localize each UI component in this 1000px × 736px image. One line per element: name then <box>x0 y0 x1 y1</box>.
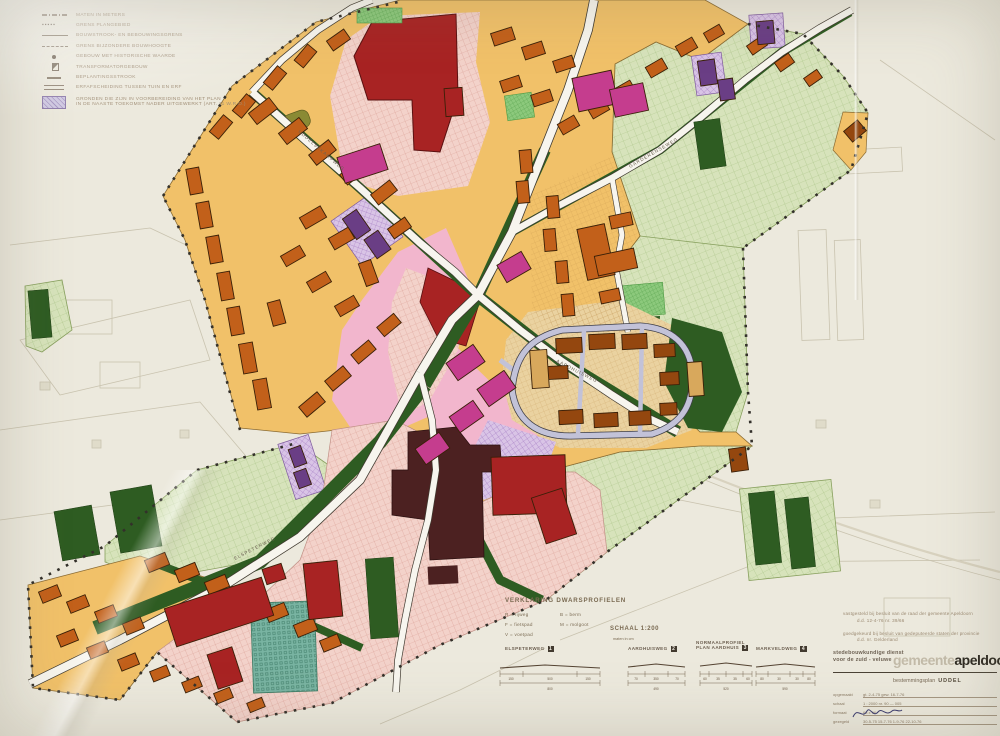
green-strip <box>365 557 399 639</box>
municipality-logo: gemeenteapeldoorn <box>893 652 1000 670</box>
profile-dimension-value: 350 <box>653 677 659 681</box>
map-shape <box>816 420 826 428</box>
municipality-name: apeldoorn <box>954 652 1000 668</box>
profile-dimension-value: 80 <box>760 677 764 681</box>
green-strip <box>28 289 52 339</box>
legend-item: BOUWSTROOK- EN BEBOUWINGSGRENS <box>42 31 312 41</box>
building <box>654 343 676 357</box>
legend-item: TRANSFORMATORGEBOUW <box>42 62 312 72</box>
profile-dimension-value: 70 <box>634 677 638 681</box>
building <box>629 410 652 425</box>
trafo-symbol-icon <box>52 63 59 71</box>
map-legend: MATEN IN METERS▪▪▪▪▪GRENS PLANGEBIEDBOUW… <box>42 10 312 111</box>
profile-dimension-value: 150 <box>585 677 591 681</box>
profile-abbreviation: M = molgoot <box>560 622 589 627</box>
map-shape <box>504 92 534 121</box>
building <box>530 349 550 388</box>
profile-abbreviation: F = fietspad <box>505 622 533 627</box>
profile-dimension-value: 30 <box>777 677 781 681</box>
map-shape <box>92 440 101 448</box>
legend-item-label: BEPLANTINGSSTROOK <box>76 75 136 80</box>
legend-item: ERFAFSCHEIDING TUSSEN TUIN EN ERF <box>42 83 312 93</box>
municipality-word: gemeente <box>893 652 954 668</box>
plan-title: bestemmingsplan UDDEL <box>893 678 962 684</box>
building <box>594 412 619 427</box>
legend-item: MATEN IN METERS <box>42 10 312 20</box>
approval-line-1b: d.d. 12-4-76 nr. 39/66 <box>857 618 995 625</box>
legend-item-label: GRENS BIJZONDERE BOUWHOOGTE <box>76 44 171 49</box>
legend-item: GRENS BIJZONDERE BOUWHOOGTE <box>42 41 312 51</box>
legend-item-label: GRONDEN DIE ZIJN IN VOORBEREIDING VAN HE… <box>76 97 246 107</box>
swatch-symbol-icon <box>42 96 66 109</box>
legend-item-label: TRANSFORMATORGEBOUW <box>76 65 148 70</box>
building <box>559 409 584 424</box>
building <box>546 196 560 219</box>
building <box>516 181 530 204</box>
legend-item-label: GRENS PLANGEBIED <box>76 23 131 28</box>
profiles-scale: SCHAAL 1:200 <box>610 626 659 632</box>
legend-item: GEBOUW MET HISTORISCHE WAARDE <box>42 52 312 62</box>
building <box>519 150 533 174</box>
profiles-scale-note: maten in cm <box>613 637 634 641</box>
building <box>589 333 616 349</box>
scanned-zoning-map: { "legend": { "items": [ {"sym":"dashdot… <box>0 0 1000 736</box>
building <box>543 229 557 252</box>
title-block-row-label: opgemaakt <box>833 692 863 697</box>
thick-symbol-icon <box>47 77 61 79</box>
title-block-rule <box>833 672 997 673</box>
profile-dimension-value: 35 <box>716 677 720 681</box>
building <box>561 294 575 317</box>
profile-section-label: MARKVELDWEG4 <box>756 646 807 652</box>
approval-line-2: goedgekeurd bij besluit van gedeputeerde… <box>843 631 995 638</box>
legend-item: GRONDEN DIE ZIJN IN VOORBEREIDING VAN HE… <box>42 93 312 111</box>
building <box>556 337 583 353</box>
profile-section-label: NORMAALPROFIEL PLAN AARDHUIS3 <box>696 640 748 651</box>
approval-line-1: vastgesteld bij besluit van de raad der … <box>843 611 995 618</box>
profile-dimension-value: 60 <box>746 677 750 681</box>
double-symbol-icon <box>44 85 64 90</box>
building <box>303 560 343 619</box>
building <box>622 333 648 349</box>
profile-dimension-value: 520 <box>723 687 729 691</box>
legend-item-label: ERFAFSCHEIDING TUSSEN TUIN EN ERF <box>76 85 182 90</box>
profile-dimension-value: 80 <box>807 677 811 681</box>
building <box>444 87 464 116</box>
map-shape <box>870 500 880 508</box>
profiles-title: VERKLARING DWARSPROFIELEN <box>505 597 835 604</box>
dashdot-symbol-icon <box>42 14 68 16</box>
map-shape <box>40 382 50 390</box>
title-block-row: opgemaaktgt. 2-4-75 gew. 16-7-76 <box>833 690 997 699</box>
legend-item: ▪▪▪▪▪GRENS PLANGEBIED <box>42 20 312 30</box>
profile-dimension-value: 35 <box>733 677 737 681</box>
approval-line-2b: d.d. nr. Gelderland <box>857 637 995 644</box>
profile-abbreviation: V = voetpad <box>505 632 533 637</box>
solid-symbol-icon <box>42 35 68 36</box>
profile-dimension-value: 30 <box>795 677 799 681</box>
profile-section-label: AARDHUISWEG2 <box>628 646 677 652</box>
profile-abbreviation: B = berm <box>560 612 581 617</box>
building <box>718 78 736 101</box>
building <box>555 261 569 284</box>
profile-section-number: 1 <box>548 646 554 652</box>
profile-section-number: 4 <box>800 646 806 652</box>
dot-symbol-icon <box>52 55 56 59</box>
signature <box>851 704 903 722</box>
building <box>660 372 680 386</box>
building <box>756 20 775 44</box>
profile-dimension-value: 590 <box>782 687 788 691</box>
profile-dimension-value: 800 <box>547 687 553 691</box>
legend-item-label: GEBOUW MET HISTORISCHE WAARDE <box>76 54 176 59</box>
profile-section-number: 2 <box>671 646 677 652</box>
profile-dimension-value: 490 <box>653 687 659 691</box>
profile-dimension-value: 70 <box>675 677 679 681</box>
plan-name: UDDEL <box>938 678 962 684</box>
legend-item-label: MATEN IN METERS <box>76 13 125 18</box>
building <box>697 59 717 86</box>
building <box>687 362 704 397</box>
legend-item-label: BOUWSTROOK- EN BEBOUWINGSGRENS <box>76 33 183 38</box>
profile-section-number: 3 <box>742 645 748 651</box>
approval-notes: vastgesteld bij besluit van de raad der … <box>843 611 995 644</box>
dashed-symbol-icon <box>42 46 68 47</box>
profile-dimension-value: 60 <box>703 677 707 681</box>
profile-dimension-value: 500 <box>547 677 553 681</box>
squares-symbol-icon: ▪▪▪▪▪ <box>42 23 56 28</box>
profile-dimension-value: 150 <box>508 677 514 681</box>
legend-item: BEPLANTINGSSTROOK <box>42 72 312 82</box>
title-block-row-value: gt. 2-4-75 gew. 16-7-76 <box>863 692 997 698</box>
map-shape <box>180 430 189 438</box>
profiles-block: VERKLARING DWARSPROFIELEN SCHAAL 1:200 m… <box>505 597 835 604</box>
map-shape <box>357 8 402 23</box>
profile-abbreviation: R = rijweg <box>505 612 529 617</box>
map-shape <box>428 565 459 585</box>
building <box>660 403 678 416</box>
profile-section-label: ELSPETERWEG1 <box>505 646 554 652</box>
title-block: stedebouwkundige dienst voor de zuid - v… <box>833 650 997 734</box>
